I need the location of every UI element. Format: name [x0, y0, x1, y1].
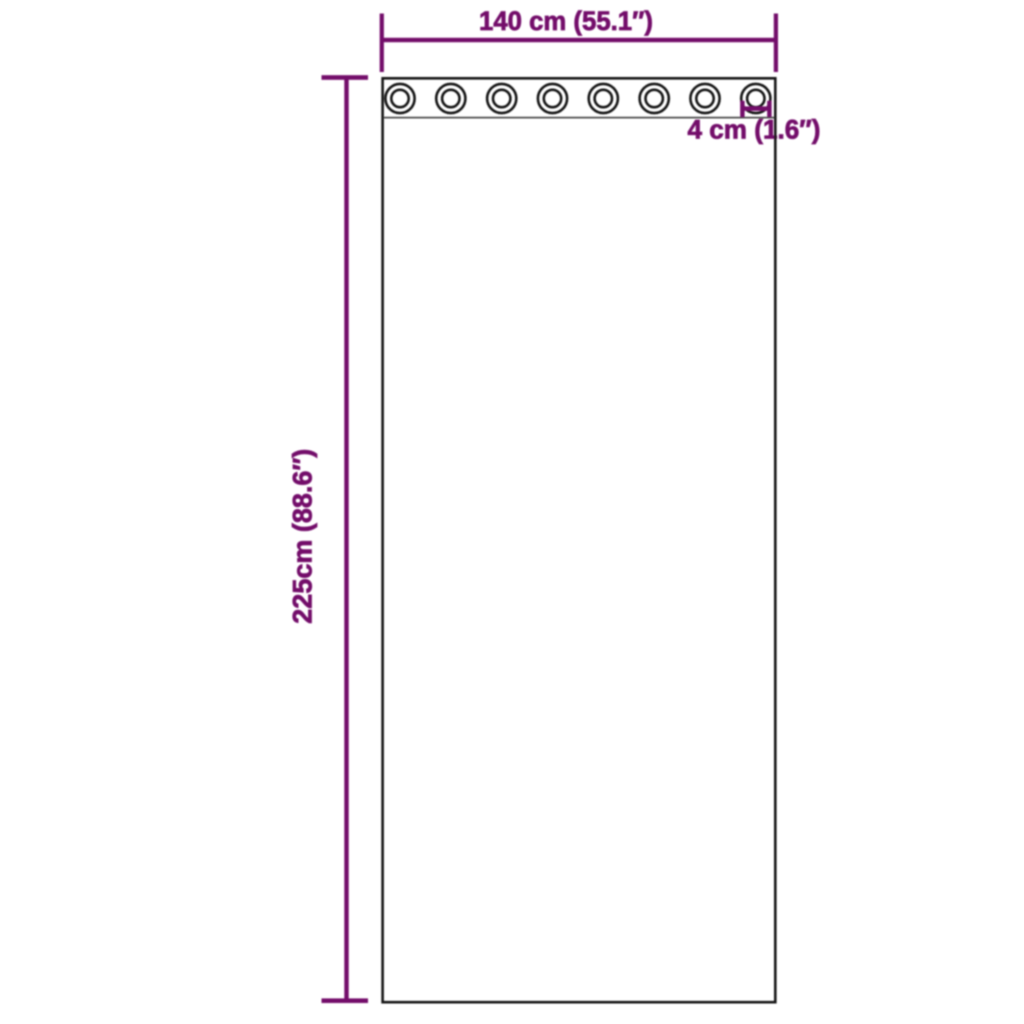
svg-text:140 cm (55.1″): 140 cm (55.1″) — [479, 6, 653, 36]
svg-text:225cm (88.6″): 225cm (88.6″) — [287, 449, 317, 624]
svg-text:4 cm (1.6″): 4 cm (1.6″) — [688, 114, 821, 144]
